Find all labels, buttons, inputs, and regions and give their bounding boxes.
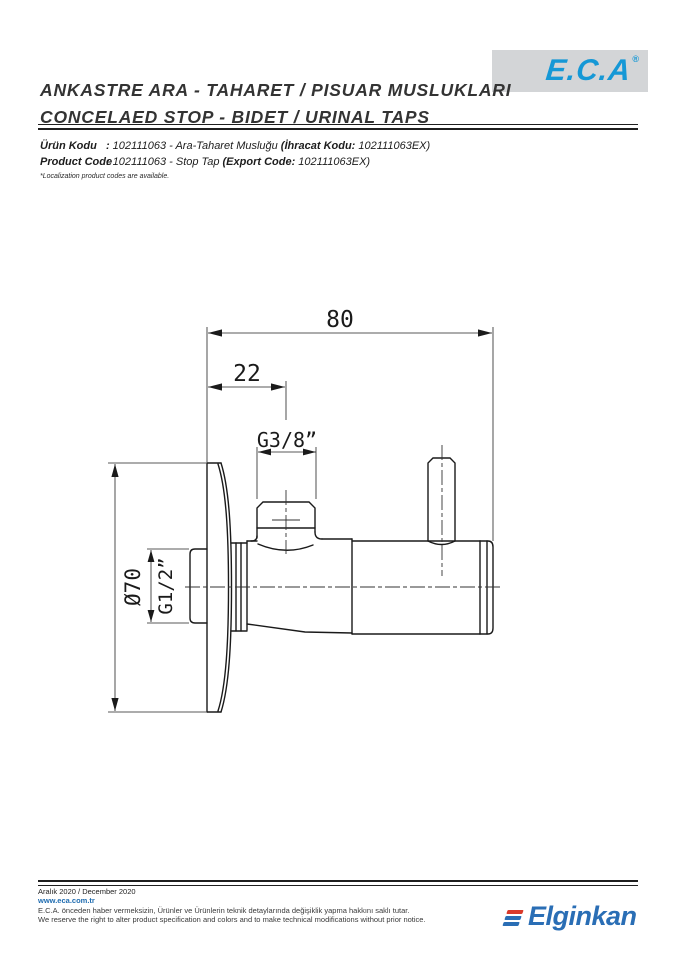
publication-date: Aralık 2020 / December 2020 — [38, 887, 426, 896]
valve-outline — [190, 458, 493, 712]
disclaimer-turkish: E.C.A. önceden haber vermeksizin, Ürünle… — [38, 906, 426, 915]
dimension-lines — [108, 327, 493, 712]
footer-text-block: Aralık 2020 / December 2020 www.eca.com.… — [38, 887, 426, 925]
dimension-labels: 80 22 G3/8” Ø70 G1/2” — [121, 307, 354, 615]
dim-inlet-thread-label: G1/2” — [155, 557, 177, 614]
dim-total-width-label: 80 — [326, 307, 354, 333]
dimension-arrows — [111, 329, 492, 711]
disclaimer-english: We reserve the right to alter product sp… — [38, 915, 426, 924]
elginkan-logo-text: Elginkan — [528, 901, 637, 932]
footer-divider — [38, 880, 638, 886]
dim-port-offset-label: 22 — [233, 361, 261, 387]
dim-top-thread-label: G3/8” — [257, 428, 317, 452]
elginkan-bars-icon — [502, 910, 523, 926]
datasheet-page: E.C.A ® ANKASTRE ARA - TAHARET / PISUAR … — [0, 0, 677, 960]
elginkan-logo: Elginkan — [505, 901, 637, 932]
technical-drawing: 80 22 G3/8” Ø70 G1/2” — [0, 0, 677, 960]
dim-flange-diameter-label: Ø70 — [121, 568, 145, 606]
website-link[interactable]: www.eca.com.tr — [38, 896, 426, 905]
